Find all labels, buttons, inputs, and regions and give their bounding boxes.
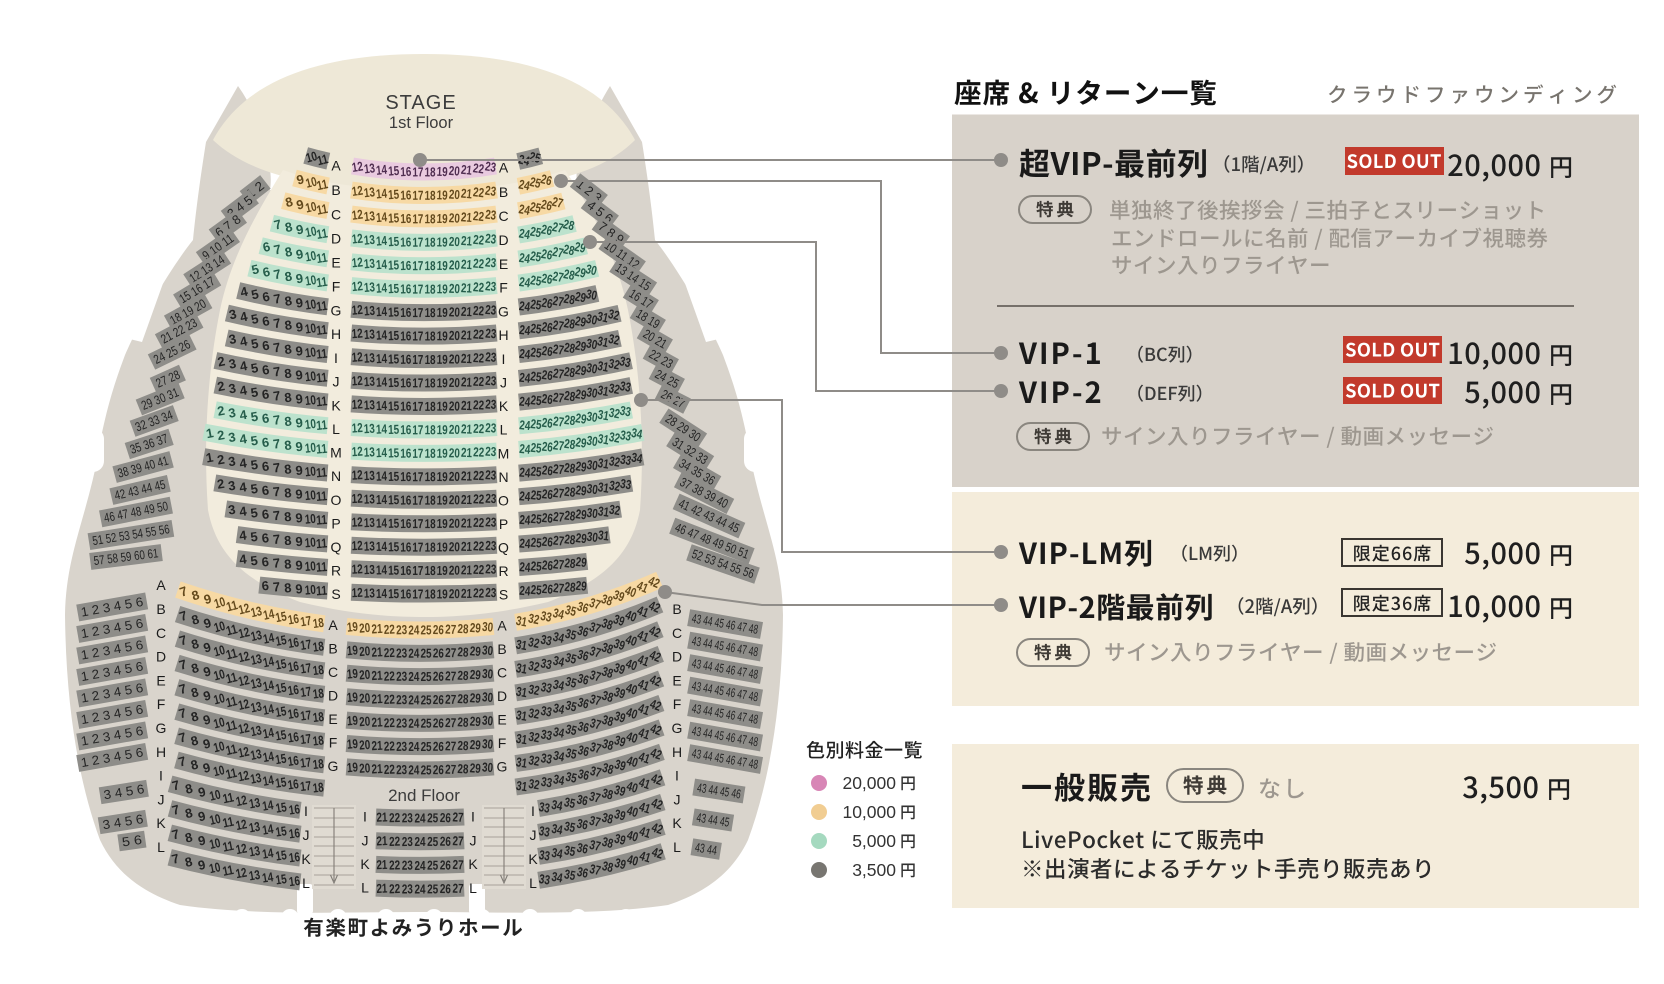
svg-text:18: 18 <box>425 446 436 461</box>
svg-text:25: 25 <box>427 881 438 896</box>
svg-text:11: 11 <box>316 417 328 433</box>
svg-text:J: J <box>158 791 165 807</box>
svg-text:22: 22 <box>472 232 484 248</box>
svg-text:I: I <box>675 768 679 784</box>
svg-text:21: 21 <box>461 327 473 343</box>
svg-text:11: 11 <box>315 274 328 290</box>
svg-text:21: 21 <box>461 374 473 389</box>
svg-text:G: G <box>498 303 509 319</box>
svg-text:17: 17 <box>412 328 423 343</box>
svg-text:5,000: 5,000 <box>852 831 896 851</box>
svg-text:F: F <box>499 280 508 296</box>
svg-text:26: 26 <box>433 715 444 730</box>
svg-text:12: 12 <box>351 183 364 199</box>
svg-text:14: 14 <box>376 562 388 577</box>
svg-text:17: 17 <box>412 352 423 367</box>
svg-text:31: 31 <box>597 527 610 543</box>
svg-text:L: L <box>469 880 477 896</box>
svg-text:12: 12 <box>351 207 364 223</box>
svg-text:29: 29 <box>469 690 481 706</box>
svg-text:24: 24 <box>415 834 427 849</box>
svg-text:13: 13 <box>363 232 375 248</box>
svg-text:18: 18 <box>425 493 436 508</box>
svg-text:14: 14 <box>376 468 388 483</box>
svg-text:25: 25 <box>530 582 542 598</box>
svg-text:14: 14 <box>376 374 388 389</box>
svg-text:22: 22 <box>383 622 395 637</box>
svg-text:21: 21 <box>460 186 472 202</box>
svg-text:20: 20 <box>449 539 460 554</box>
svg-text:25: 25 <box>530 416 542 432</box>
svg-text:18: 18 <box>312 685 325 701</box>
svg-text:22: 22 <box>472 160 485 176</box>
svg-text:15: 15 <box>274 751 287 768</box>
svg-text:L: L <box>673 839 681 855</box>
svg-text:13: 13 <box>364 397 376 413</box>
svg-text:21: 21 <box>371 738 383 754</box>
svg-text:16: 16 <box>400 352 411 367</box>
svg-text:23: 23 <box>484 254 496 270</box>
svg-text:13: 13 <box>363 421 375 437</box>
svg-text:25: 25 <box>530 392 543 408</box>
svg-text:17: 17 <box>299 754 312 770</box>
svg-text:21: 21 <box>461 468 473 483</box>
svg-text:24: 24 <box>408 762 420 777</box>
svg-text:19: 19 <box>436 258 447 273</box>
svg-text:L: L <box>361 880 369 896</box>
svg-text:I: I <box>159 768 163 784</box>
svg-text:20: 20 <box>359 643 371 659</box>
svg-text:29: 29 <box>575 554 588 570</box>
svg-text:M: M <box>330 445 342 461</box>
svg-text:22: 22 <box>473 538 485 553</box>
svg-text:17: 17 <box>412 305 423 320</box>
svg-text:23: 23 <box>485 467 497 483</box>
svg-text:24: 24 <box>408 716 420 731</box>
svg-text:13: 13 <box>363 184 376 200</box>
svg-text:B: B <box>672 601 681 617</box>
svg-text:16: 16 <box>400 375 411 390</box>
svg-text:28: 28 <box>563 460 576 476</box>
svg-text:21: 21 <box>376 809 388 824</box>
svg-text:29: 29 <box>575 530 588 546</box>
svg-text:15: 15 <box>388 281 400 296</box>
svg-text:J: J <box>674 791 681 807</box>
svg-text:26: 26 <box>440 834 451 849</box>
svg-text:B: B <box>497 641 506 657</box>
svg-text:20: 20 <box>449 281 461 296</box>
svg-text:9: 9 <box>295 534 304 550</box>
svg-text:24: 24 <box>408 692 420 707</box>
svg-text:28: 28 <box>457 761 469 777</box>
svg-text:19: 19 <box>437 328 448 343</box>
svg-text:17: 17 <box>299 613 312 630</box>
svg-text:22: 22 <box>473 374 485 390</box>
svg-text:13: 13 <box>363 160 376 176</box>
svg-text:17: 17 <box>299 684 312 700</box>
svg-text:S: S <box>331 586 340 602</box>
svg-text:G: G <box>156 720 167 736</box>
svg-text:12: 12 <box>351 561 363 576</box>
svg-text:14: 14 <box>376 398 388 413</box>
svg-text:20: 20 <box>449 304 461 319</box>
svg-text:F: F <box>498 735 507 751</box>
svg-text:17: 17 <box>299 660 312 676</box>
svg-text:18: 18 <box>425 399 436 414</box>
svg-text:22: 22 <box>389 881 400 896</box>
svg-text:14: 14 <box>375 233 388 249</box>
svg-text:25: 25 <box>421 739 432 754</box>
svg-text:17: 17 <box>412 211 423 226</box>
svg-text:24: 24 <box>415 882 427 897</box>
svg-text:21: 21 <box>461 351 473 367</box>
svg-text:14: 14 <box>375 185 388 201</box>
svg-text:19: 19 <box>437 446 448 461</box>
svg-text:17: 17 <box>299 778 312 794</box>
svg-text:14: 14 <box>376 539 388 554</box>
svg-text:23: 23 <box>485 538 497 554</box>
svg-text:14: 14 <box>376 327 388 343</box>
svg-text:20: 20 <box>449 445 460 460</box>
svg-text:18: 18 <box>425 211 436 226</box>
svg-text:21: 21 <box>460 162 472 178</box>
svg-text:12: 12 <box>351 278 363 294</box>
svg-text:15: 15 <box>388 445 399 460</box>
svg-text:18: 18 <box>425 540 436 555</box>
svg-text:12: 12 <box>351 349 363 365</box>
svg-text:27: 27 <box>445 645 457 660</box>
svg-text:19: 19 <box>437 493 448 508</box>
svg-text:O: O <box>331 492 342 508</box>
svg-text:29: 29 <box>575 506 588 522</box>
svg-text:12: 12 <box>351 231 364 247</box>
svg-text:21: 21 <box>371 644 383 660</box>
svg-text:21: 21 <box>461 257 473 273</box>
svg-text:14: 14 <box>376 304 388 320</box>
svg-text:21: 21 <box>461 398 473 413</box>
svg-text:12: 12 <box>351 467 363 483</box>
svg-text:23: 23 <box>485 396 497 412</box>
svg-text:23: 23 <box>485 491 497 507</box>
svg-text:18: 18 <box>425 375 436 390</box>
svg-text:14: 14 <box>376 351 388 367</box>
svg-text:22: 22 <box>384 762 396 777</box>
svg-text:3,500: 3,500 <box>852 860 896 880</box>
svg-text:15: 15 <box>388 234 400 250</box>
svg-text:18: 18 <box>425 235 436 250</box>
svg-text:13: 13 <box>363 279 375 295</box>
svg-text:9: 9 <box>295 557 303 573</box>
svg-text:18: 18 <box>312 779 325 795</box>
svg-text:D: D <box>497 688 507 704</box>
svg-text:14: 14 <box>376 280 388 296</box>
svg-text:16: 16 <box>400 516 411 531</box>
svg-text:15: 15 <box>388 586 399 601</box>
svg-text:B: B <box>156 601 165 617</box>
svg-text:C: C <box>156 625 166 641</box>
svg-text:17: 17 <box>299 636 312 652</box>
svg-text:23: 23 <box>485 420 497 436</box>
svg-text:13: 13 <box>363 326 375 342</box>
svg-text:28: 28 <box>457 691 469 707</box>
svg-text:15: 15 <box>388 328 400 343</box>
svg-text:16: 16 <box>288 801 301 817</box>
svg-text:17: 17 <box>412 469 423 484</box>
svg-text:13: 13 <box>363 303 375 319</box>
svg-text:I: I <box>471 809 475 825</box>
svg-text:13: 13 <box>364 585 376 600</box>
svg-text:11: 11 <box>315 441 327 457</box>
svg-text:32: 32 <box>528 776 541 793</box>
svg-text:10: 10 <box>304 511 316 527</box>
svg-text:13: 13 <box>364 562 376 577</box>
svg-text:21: 21 <box>461 280 473 296</box>
svg-text:20: 20 <box>359 667 371 683</box>
svg-text:22: 22 <box>473 421 485 437</box>
svg-text:16: 16 <box>287 658 300 675</box>
svg-text:9: 9 <box>295 581 303 597</box>
svg-text:27: 27 <box>552 509 564 525</box>
svg-text:L: L <box>157 839 165 855</box>
svg-text:15: 15 <box>388 492 399 507</box>
svg-text:15: 15 <box>388 163 400 179</box>
svg-text:26: 26 <box>440 810 451 825</box>
svg-text:23: 23 <box>485 278 497 294</box>
svg-text:19: 19 <box>346 642 358 658</box>
svg-text:15: 15 <box>275 871 288 887</box>
svg-text:11: 11 <box>315 298 328 314</box>
svg-text:16: 16 <box>287 776 300 792</box>
svg-text:K: K <box>156 815 166 831</box>
svg-text:23: 23 <box>396 692 407 707</box>
svg-text:30: 30 <box>481 619 493 635</box>
svg-text:15: 15 <box>388 257 400 272</box>
svg-text:16: 16 <box>288 873 301 889</box>
svg-text:7: 7 <box>272 555 281 571</box>
svg-text:18: 18 <box>312 756 325 772</box>
svg-text:31: 31 <box>515 707 528 723</box>
svg-text:20: 20 <box>449 398 460 413</box>
svg-text:23: 23 <box>396 669 407 684</box>
svg-text:26: 26 <box>541 415 554 431</box>
svg-text:19: 19 <box>437 399 448 414</box>
svg-text:12: 12 <box>351 373 363 389</box>
svg-text:16: 16 <box>287 682 300 699</box>
svg-text:21: 21 <box>460 233 472 249</box>
svg-text:19: 19 <box>437 516 448 531</box>
svg-text:22: 22 <box>384 738 396 753</box>
svg-text:Q: Q <box>331 539 342 555</box>
svg-text:17: 17 <box>412 493 423 508</box>
svg-text:G: G <box>328 758 339 774</box>
svg-text:23: 23 <box>484 231 497 247</box>
svg-text:24: 24 <box>408 669 420 684</box>
svg-text:23: 23 <box>484 207 497 223</box>
svg-text:21: 21 <box>376 833 388 848</box>
svg-text:31: 31 <box>515 778 528 794</box>
svg-text:12: 12 <box>351 538 363 554</box>
svg-text:17: 17 <box>412 399 423 414</box>
svg-text:30: 30 <box>586 505 599 521</box>
svg-text:8: 8 <box>283 509 292 525</box>
svg-text:18: 18 <box>312 709 325 725</box>
svg-text:M: M <box>498 445 510 461</box>
svg-text:22: 22 <box>384 692 396 707</box>
svg-text:19: 19 <box>346 689 358 705</box>
svg-text:18: 18 <box>424 164 435 179</box>
svg-text:15: 15 <box>388 563 399 578</box>
svg-text:A: A <box>156 577 166 593</box>
svg-text:29: 29 <box>469 714 481 730</box>
svg-text:26: 26 <box>440 881 451 896</box>
svg-text:21: 21 <box>461 586 472 601</box>
svg-text:17: 17 <box>299 731 312 747</box>
svg-text:17: 17 <box>412 516 423 531</box>
svg-text:A: A <box>328 617 338 633</box>
svg-text:18: 18 <box>425 422 436 437</box>
svg-text:31: 31 <box>515 754 528 770</box>
svg-text:H: H <box>672 744 682 760</box>
svg-text:13: 13 <box>363 491 375 506</box>
svg-text:16: 16 <box>400 539 411 554</box>
svg-text:18: 18 <box>425 188 436 203</box>
svg-text:21: 21 <box>461 421 473 436</box>
svg-text:17: 17 <box>412 540 423 555</box>
svg-text:9: 9 <box>295 462 304 478</box>
svg-text:21: 21 <box>371 621 383 637</box>
svg-text:21: 21 <box>376 857 388 872</box>
svg-text:C: C <box>498 208 508 224</box>
svg-text:22: 22 <box>473 256 485 272</box>
svg-text:E: E <box>328 711 337 727</box>
svg-text:18: 18 <box>312 732 325 748</box>
svg-text:22: 22 <box>389 810 400 825</box>
svg-text:27: 27 <box>445 715 457 730</box>
svg-text:L: L <box>302 875 310 891</box>
svg-text:19: 19 <box>436 234 447 249</box>
svg-text:22: 22 <box>472 208 484 224</box>
svg-text:18: 18 <box>312 615 325 631</box>
svg-text:13: 13 <box>363 444 375 460</box>
svg-text:28: 28 <box>564 531 577 547</box>
svg-text:20: 20 <box>449 469 460 484</box>
svg-text:12: 12 <box>351 514 363 530</box>
svg-text:F: F <box>157 696 166 712</box>
svg-text:16: 16 <box>288 825 301 841</box>
svg-text:15: 15 <box>275 847 288 863</box>
svg-text:D: D <box>672 649 682 665</box>
svg-text:17: 17 <box>412 586 423 601</box>
svg-text:33: 33 <box>538 871 551 888</box>
svg-text:15: 15 <box>388 187 400 203</box>
svg-text:23: 23 <box>485 444 497 460</box>
svg-text:F: F <box>329 735 338 751</box>
svg-text:D: D <box>331 231 341 247</box>
svg-text:28: 28 <box>457 621 469 637</box>
svg-text:14: 14 <box>376 257 388 273</box>
svg-text:27: 27 <box>552 461 565 477</box>
svg-text:17: 17 <box>412 446 423 461</box>
svg-text:B: B <box>499 184 508 200</box>
svg-text:20: 20 <box>449 257 461 272</box>
svg-text:7: 7 <box>272 579 281 595</box>
svg-text:31: 31 <box>515 731 528 747</box>
svg-text:20: 20 <box>449 492 460 507</box>
svg-text:19: 19 <box>346 666 358 682</box>
svg-text:13: 13 <box>363 538 375 553</box>
svg-text:22: 22 <box>389 857 400 872</box>
svg-text:12: 12 <box>351 444 363 460</box>
svg-text:22: 22 <box>473 562 485 577</box>
svg-text:8: 8 <box>283 556 292 572</box>
svg-text:E: E <box>156 672 165 688</box>
svg-text:21: 21 <box>461 562 472 577</box>
svg-text:D: D <box>328 688 338 704</box>
svg-text:20: 20 <box>449 351 460 366</box>
svg-text:P: P <box>331 515 340 531</box>
svg-text:I: I <box>502 351 506 367</box>
svg-text:O: O <box>498 492 509 508</box>
svg-text:12: 12 <box>351 396 363 412</box>
svg-text:J: J <box>362 832 369 848</box>
svg-text:11: 11 <box>316 512 328 528</box>
svg-text:19: 19 <box>346 759 358 775</box>
svg-text:16: 16 <box>400 586 411 601</box>
svg-text:15: 15 <box>388 422 399 437</box>
svg-text:18: 18 <box>425 305 436 320</box>
svg-text:30: 30 <box>481 642 493 658</box>
svg-text:A: A <box>331 158 341 174</box>
svg-text:H: H <box>331 326 341 342</box>
svg-text:21: 21 <box>461 492 472 507</box>
svg-text:D: D <box>498 232 508 248</box>
svg-text:J: J <box>333 374 340 390</box>
svg-text:I: I <box>363 809 367 825</box>
svg-text:30: 30 <box>482 736 494 752</box>
svg-text:22: 22 <box>473 279 485 295</box>
svg-text:17: 17 <box>299 707 312 723</box>
svg-text:23: 23 <box>485 373 497 389</box>
svg-text:C: C <box>672 625 682 641</box>
svg-text:26: 26 <box>541 462 553 478</box>
svg-text:14: 14 <box>376 445 388 460</box>
svg-text:16: 16 <box>400 563 411 578</box>
svg-text:11: 11 <box>315 369 328 385</box>
svg-text:23: 23 <box>396 762 407 777</box>
svg-text:30: 30 <box>482 689 494 705</box>
svg-text:16: 16 <box>400 328 411 343</box>
svg-text:17: 17 <box>412 258 423 273</box>
svg-text:12: 12 <box>351 325 363 341</box>
svg-text:10,000: 10,000 <box>842 802 896 822</box>
svg-text:20: 20 <box>359 620 371 636</box>
svg-text:15: 15 <box>388 398 399 413</box>
svg-text:19: 19 <box>437 305 448 320</box>
svg-text:16: 16 <box>400 469 411 484</box>
svg-text:11: 11 <box>315 393 327 409</box>
svg-text:17: 17 <box>412 282 423 297</box>
svg-text:23: 23 <box>396 645 407 660</box>
svg-text:19: 19 <box>346 713 358 729</box>
svg-text:10: 10 <box>304 558 316 574</box>
svg-text:L: L <box>500 422 508 438</box>
svg-text:18: 18 <box>425 352 436 367</box>
svg-text:E: E <box>672 672 681 688</box>
svg-text:C: C <box>331 207 341 223</box>
svg-text:24: 24 <box>408 739 420 754</box>
svg-text:33: 33 <box>619 476 632 493</box>
svg-text:13: 13 <box>363 468 375 483</box>
